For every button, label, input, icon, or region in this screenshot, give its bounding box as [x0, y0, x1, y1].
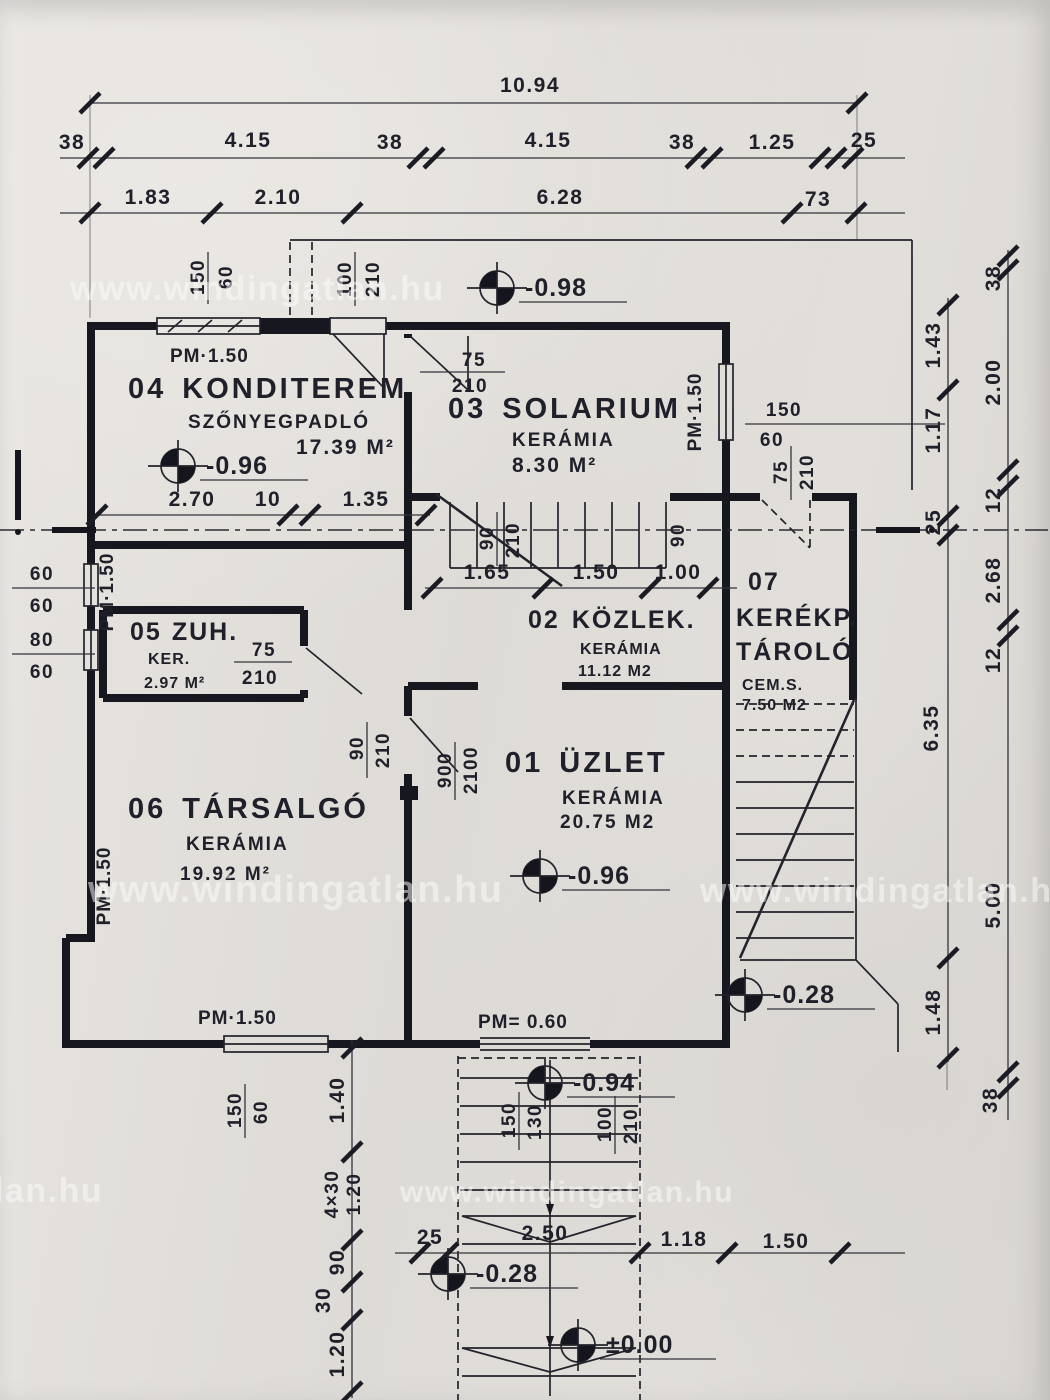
- room-title-kozlek: 02KÖZLEK.: [528, 605, 696, 634]
- room-area-solarium: 8.30 M²: [512, 454, 597, 477]
- door-size: 90: [347, 736, 368, 760]
- door-size: 210: [503, 522, 524, 558]
- dim-label: 38: [669, 131, 695, 154]
- door-size: 210: [797, 454, 818, 490]
- dim-label: 1.00: [655, 561, 702, 584]
- dim-label: 38: [982, 265, 1005, 291]
- dim-label: 12: [982, 487, 1005, 513]
- door-size: 900: [435, 752, 456, 788]
- dim-label: 4.15: [525, 129, 572, 152]
- dim-label: 12: [982, 647, 1005, 673]
- window-size: 60: [30, 662, 54, 683]
- room-title-tarsalgo: 06TÁRSALGÓ: [128, 791, 369, 825]
- dim-label: 38: [377, 131, 403, 154]
- parapet-label: PM·1.50: [685, 373, 706, 452]
- room-title-zuh: 05ZUH.: [130, 618, 238, 646]
- parapet-label: PM·1.50: [170, 346, 249, 367]
- room-floor-tarsalgo: KERÁMIA: [186, 833, 289, 855]
- door-size: 90: [477, 526, 498, 550]
- door-size: 75: [252, 640, 276, 661]
- elevation-value: ±0.00: [606, 1331, 673, 1359]
- dim-label: 2.70: [169, 488, 216, 511]
- window-size: 150: [225, 1092, 246, 1128]
- dim-label: 1.20: [344, 1173, 365, 1216]
- window-size: 60: [30, 596, 54, 617]
- elevation-symbol: [510, 850, 570, 902]
- dim-label: 90: [326, 1249, 349, 1275]
- door-size: 210: [373, 732, 394, 768]
- elevation-symbol: [548, 1319, 608, 1371]
- room-floor-zuh: KER.: [148, 651, 190, 668]
- door-size: 210: [242, 668, 278, 689]
- watermark: www.windingatlan.hu: [699, 872, 1050, 910]
- window-size: 60: [251, 1100, 272, 1124]
- elevation-symbol: [467, 262, 527, 314]
- parapet-label: PM·1.50: [97, 553, 118, 632]
- watermark: www.windingatlan.hu: [69, 270, 445, 308]
- dim-label: 2.10: [255, 186, 302, 209]
- watermark: www.windingatlan.hu: [399, 1176, 734, 1209]
- dim-label: 2.68: [982, 557, 1005, 604]
- elevation-value: -0.98: [525, 274, 587, 302]
- dim-label: 1.17: [922, 407, 945, 454]
- elevation-symbol: [148, 440, 208, 492]
- entry-size: 130: [525, 1104, 546, 1140]
- room-area-kerekparos: 7.50 M2: [742, 697, 807, 714]
- room-area-kozlek: 11.12 M2: [578, 663, 652, 680]
- dim-label: 1.65: [464, 561, 511, 584]
- elevation-value: -0.96: [206, 452, 268, 480]
- dim-label: 25: [922, 509, 945, 535]
- dim-label: 73: [805, 188, 831, 211]
- floorplan-scan: 10.94 38 4.15 38 4.15 38 1.25 25 1.83 2.…: [0, 0, 1050, 1400]
- room-area-uzlet: 20.75 M2: [560, 812, 655, 833]
- dim-label: 2.00: [982, 359, 1005, 406]
- dim-label: 38: [979, 1087, 1002, 1113]
- window-size: 80: [30, 630, 54, 651]
- room-title-konditerem: 04KONDITEREM: [128, 373, 407, 405]
- door-size: 100: [595, 1106, 616, 1142]
- dim-label: 4.15: [225, 129, 272, 152]
- dim-label: 1.20: [326, 1331, 349, 1378]
- elevation-symbol: [418, 1248, 478, 1300]
- dim-label: 6.28: [537, 186, 584, 209]
- room-title-kerekparos: KERÉKP.: [736, 603, 858, 632]
- room-area-konditerem: 17.39 M²: [296, 436, 395, 459]
- dim-label: 1.83: [125, 186, 172, 209]
- room-floor-uzlet: KERÁMIA: [562, 787, 665, 809]
- door-size: 90: [668, 523, 689, 547]
- room-floor-solarium: KERÁMIA: [512, 429, 615, 451]
- dim-label: 1.18: [661, 1228, 708, 1251]
- room-floor-kerekparos: CEM.S.: [742, 677, 803, 694]
- window-size: 60: [760, 430, 784, 451]
- floorplan-drawing: 10.94 38 4.15 38 4.15 38 1.25 25 1.83 2.…: [0, 0, 1050, 1400]
- room-title2-kerekparos: TÁROLÓ: [736, 636, 854, 666]
- dim-label: 1.43: [922, 322, 945, 369]
- window-size: 60: [30, 564, 54, 585]
- dim-label: 1.40: [326, 1077, 349, 1124]
- parapet-label: PM= 0.60: [478, 1012, 568, 1033]
- dim-label: 10: [255, 488, 281, 511]
- watermark: www.windingatlan.hu: [87, 869, 504, 911]
- dim-label: 1.50: [573, 561, 620, 584]
- room-floor-konditerem: SZŐNYEGPADLÓ: [188, 411, 370, 433]
- dim-total: 10.94: [500, 74, 560, 97]
- room-floor-kozlek: KERÁMIA: [580, 639, 662, 658]
- door-size: 210: [621, 1108, 642, 1144]
- parapet-label: PM·1.50: [198, 1008, 277, 1029]
- dim-label: 4×30: [322, 1170, 343, 1219]
- dim-label: 30: [312, 1287, 335, 1313]
- elevation-symbol: [515, 1057, 575, 1109]
- elevation-value: -0.28: [773, 981, 835, 1009]
- elevation-value: -0.28: [476, 1260, 538, 1288]
- dim-label: 1.50: [763, 1230, 810, 1253]
- door-size: 2100: [461, 746, 482, 794]
- elevation-value: -0.96: [568, 862, 630, 890]
- room-title-solarium: 03SOLARIUM: [448, 393, 681, 425]
- room-number-kerekparos: 07: [748, 568, 780, 596]
- room-title-uzlet: 01ÜZLET: [505, 746, 668, 779]
- dim-label: 1.25: [749, 131, 796, 154]
- door-size: 75: [771, 460, 792, 484]
- dim-label: 25: [851, 129, 877, 152]
- elevation-value: -0.94: [573, 1069, 635, 1097]
- door-size: 75: [462, 350, 486, 371]
- window-size: 150: [766, 400, 802, 421]
- dim-label: 1.35: [343, 488, 390, 511]
- dim-label: 38: [59, 131, 85, 154]
- room-area-zuh: 2.97 M²: [144, 675, 205, 692]
- dim-label: 6.35: [920, 705, 943, 752]
- watermark-partial: lan.hu: [0, 1172, 103, 1210]
- dim-label: 2.50: [522, 1222, 569, 1245]
- dim-label: 25: [417, 1226, 443, 1249]
- dim-label: 1.48: [922, 989, 945, 1036]
- entry-size: 150: [499, 1102, 520, 1138]
